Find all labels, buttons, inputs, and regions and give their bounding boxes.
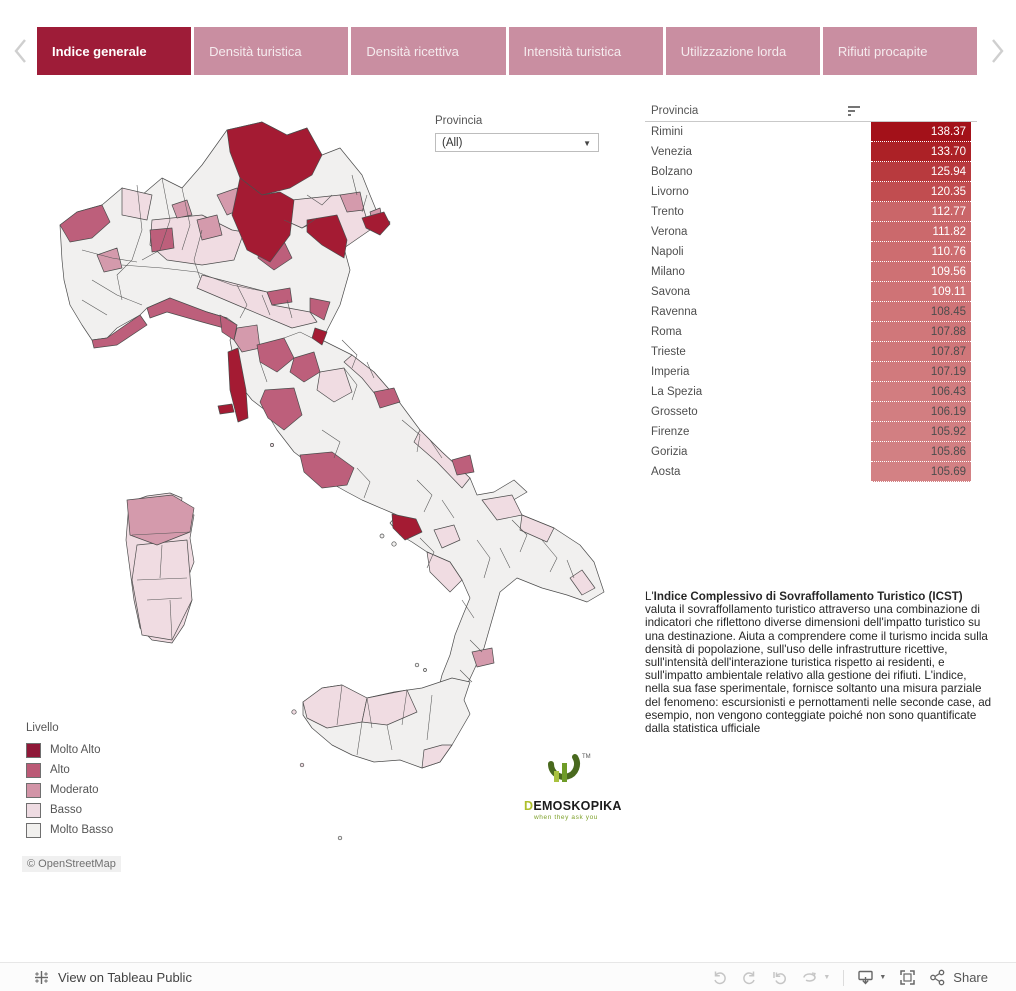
- province-name[interactable]: Milano: [645, 262, 871, 282]
- legend-swatch: [26, 803, 41, 818]
- legend-item[interactable]: Molto Basso: [26, 820, 113, 840]
- province-name[interactable]: Aosta: [645, 462, 871, 482]
- map-region-milano[interactable]: [150, 228, 174, 252]
- tabs-scroll-right-icon[interactable]: [986, 36, 1008, 66]
- province-name[interactable]: Bolzano: [645, 162, 871, 182]
- table-row[interactable]: Venezia133.70: [645, 142, 977, 162]
- table-row[interactable]: Trieste107.87: [645, 342, 977, 362]
- province-value-cell[interactable]: 105.86: [871, 442, 971, 462]
- tabs-scroll-left-icon[interactable]: [10, 36, 32, 66]
- view-on-tableau-public-label: View on Tableau Public: [58, 970, 192, 985]
- table-row[interactable]: Livorno120.35: [645, 182, 977, 202]
- tab-indice-generale[interactable]: Indice generale: [37, 27, 191, 75]
- province-value-cell[interactable]: 125.94: [871, 162, 971, 182]
- reset-icon[interactable]: [771, 969, 788, 986]
- map-region[interactable]: [197, 215, 222, 240]
- table-row[interactable]: Firenze105.92: [645, 422, 977, 442]
- sort-descending-icon[interactable]: [848, 106, 861, 118]
- province-value-cell[interactable]: 110.76: [871, 242, 971, 262]
- tab-utilizzazione-lorda[interactable]: Utilizzazione lorda: [666, 27, 820, 75]
- refresh-icon[interactable]: [801, 969, 818, 986]
- map-island: [338, 836, 342, 840]
- tableau-toolbar: View on Tableau Public ▼ ▼ Share: [0, 962, 1016, 991]
- province-value-cell[interactable]: 108.45: [871, 302, 971, 322]
- tab-densita-ricettiva[interactable]: Densità ricettiva: [351, 27, 505, 75]
- province-value-cell[interactable]: 138.37: [871, 122, 971, 142]
- table-row[interactable]: Savona109.11: [645, 282, 977, 302]
- toolbar-divider: [843, 970, 844, 986]
- table-row[interactable]: Ravenna108.45: [645, 302, 977, 322]
- legend-item[interactable]: Moderato: [26, 780, 113, 800]
- refresh-options-caret-icon[interactable]: ▼: [823, 974, 830, 981]
- map-island: [415, 663, 419, 667]
- share-label[interactable]: Share: [953, 970, 988, 985]
- table-row[interactable]: Trento112.77: [645, 202, 977, 222]
- province-name[interactable]: Livorno: [645, 182, 871, 202]
- table-row[interactable]: Gorizia105.86: [645, 442, 977, 462]
- province-value-cell[interactable]: 111.82: [871, 222, 971, 242]
- province-table: Provincia Rimini138.37 Venezia133.70 Bol…: [645, 102, 977, 482]
- tab-densita-turistica[interactable]: Densità turistica: [194, 27, 348, 75]
- redo-icon[interactable]: [741, 969, 758, 986]
- province-name[interactable]: Rimini: [645, 122, 871, 142]
- undo-icon[interactable]: [711, 969, 728, 986]
- share-icon[interactable]: [929, 969, 946, 986]
- province-value-cell[interactable]: 107.88: [871, 322, 971, 342]
- dashboard-tabbar: Indice generale Densità turistica Densit…: [37, 27, 977, 75]
- province-value-cell[interactable]: 120.35: [871, 182, 971, 202]
- province-name[interactable]: Firenze: [645, 422, 871, 442]
- tab-intensita-turistica[interactable]: Intensità turistica: [509, 27, 663, 75]
- province-name[interactable]: Venezia: [645, 142, 871, 162]
- province-name[interactable]: Imperia: [645, 362, 871, 382]
- map-region-elba[interactable]: [218, 404, 234, 414]
- map-island: [292, 710, 296, 714]
- province-value-cell[interactable]: 105.69: [871, 462, 971, 482]
- download-options-caret-icon[interactable]: ▼: [879, 974, 886, 981]
- table-header-label: Provincia: [645, 102, 977, 120]
- demoskopika-logo-icon: TM: [541, 750, 591, 792]
- province-name[interactable]: Napoli: [645, 242, 871, 262]
- map-island: [270, 443, 273, 446]
- table-row[interactable]: Aosta105.69: [645, 462, 977, 482]
- table-row[interactable]: Milano109.56: [645, 262, 977, 282]
- province-name[interactable]: Savona: [645, 282, 871, 302]
- province-value-cell[interactable]: 107.19: [871, 362, 971, 382]
- province-name[interactable]: Trento: [645, 202, 871, 222]
- filter-label: Provincia: [435, 115, 482, 127]
- legend-swatch: [26, 783, 41, 798]
- province-name[interactable]: Gorizia: [645, 442, 871, 462]
- tableau-logo-icon: [33, 969, 50, 986]
- map-island: [300, 763, 304, 767]
- table-row[interactable]: Rimini138.37: [645, 122, 977, 142]
- tm-mark: TM: [582, 754, 591, 760]
- province-name[interactable]: Trieste: [645, 342, 871, 362]
- province-name[interactable]: Grosseto: [645, 402, 871, 422]
- download-icon[interactable]: [857, 969, 874, 986]
- legend-swatch: [26, 763, 41, 778]
- province-name[interactable]: Verona: [645, 222, 871, 242]
- province-name[interactable]: Roma: [645, 322, 871, 342]
- legend-item[interactable]: Alto: [26, 760, 113, 780]
- province-value-cell[interactable]: 112.77: [871, 202, 971, 222]
- legend-swatch: [26, 743, 41, 758]
- map-island: [380, 534, 384, 538]
- demoskopika-logo: TM DEMOSKOPIKA when they ask you: [524, 750, 608, 821]
- table-header[interactable]: Provincia: [645, 102, 977, 122]
- table-row[interactable]: Napoli110.76: [645, 242, 977, 262]
- province-value-cell[interactable]: 109.11: [871, 282, 971, 302]
- icst-description: L'Indice Complessivo di Sovraffollamento…: [645, 590, 994, 735]
- table-row[interactable]: Imperia107.19: [645, 362, 977, 382]
- table-row[interactable]: La Spezia106.43: [645, 382, 977, 402]
- province-value-cell[interactable]: 105.92: [871, 422, 971, 442]
- province-value-cell[interactable]: 109.56: [871, 262, 971, 282]
- map-legend: Livello Molto Alto Alto Moderato Basso M…: [26, 722, 113, 840]
- demoskopika-tagline: when they ask you: [524, 814, 608, 821]
- demoskopika-wordmark: DEMOSKOPIKA: [524, 799, 608, 813]
- fullscreen-icon[interactable]: [899, 969, 916, 986]
- map-island: [424, 669, 427, 672]
- table-row[interactable]: Grosseto106.19: [645, 402, 977, 422]
- province-value-cell[interactable]: 133.70: [871, 142, 971, 162]
- province-value-cell[interactable]: 106.43: [871, 382, 971, 402]
- openstreetmap-attribution[interactable]: © OpenStreetMap: [22, 856, 121, 872]
- table-row[interactable]: Verona111.82: [645, 222, 977, 242]
- view-on-tableau-public-link[interactable]: View on Tableau Public: [33, 969, 192, 986]
- legend-title: Livello: [26, 722, 113, 734]
- province-value-cell[interactable]: 106.19: [871, 402, 971, 422]
- tab-rifiuti-procapite[interactable]: Rifiuti procapite: [823, 27, 977, 75]
- table-row[interactable]: Roma107.88: [645, 322, 977, 342]
- chevron-down-icon: ▼: [583, 139, 591, 148]
- province-value-cell[interactable]: 107.87: [871, 342, 971, 362]
- legend-item[interactable]: Basso: [26, 800, 113, 820]
- provincia-dropdown-value: (All): [442, 137, 462, 149]
- map-island: [392, 542, 396, 546]
- icst-title: Indice Complessivo di Sovraffollamento T…: [654, 590, 963, 603]
- legend-swatch: [26, 823, 41, 838]
- provincia-dropdown[interactable]: (All) ▼: [435, 133, 599, 152]
- province-name[interactable]: La Spezia: [645, 382, 871, 402]
- legend-item[interactable]: Molto Alto: [26, 740, 113, 760]
- province-name[interactable]: Ravenna: [645, 302, 871, 322]
- table-row[interactable]: Bolzano125.94: [645, 162, 977, 182]
